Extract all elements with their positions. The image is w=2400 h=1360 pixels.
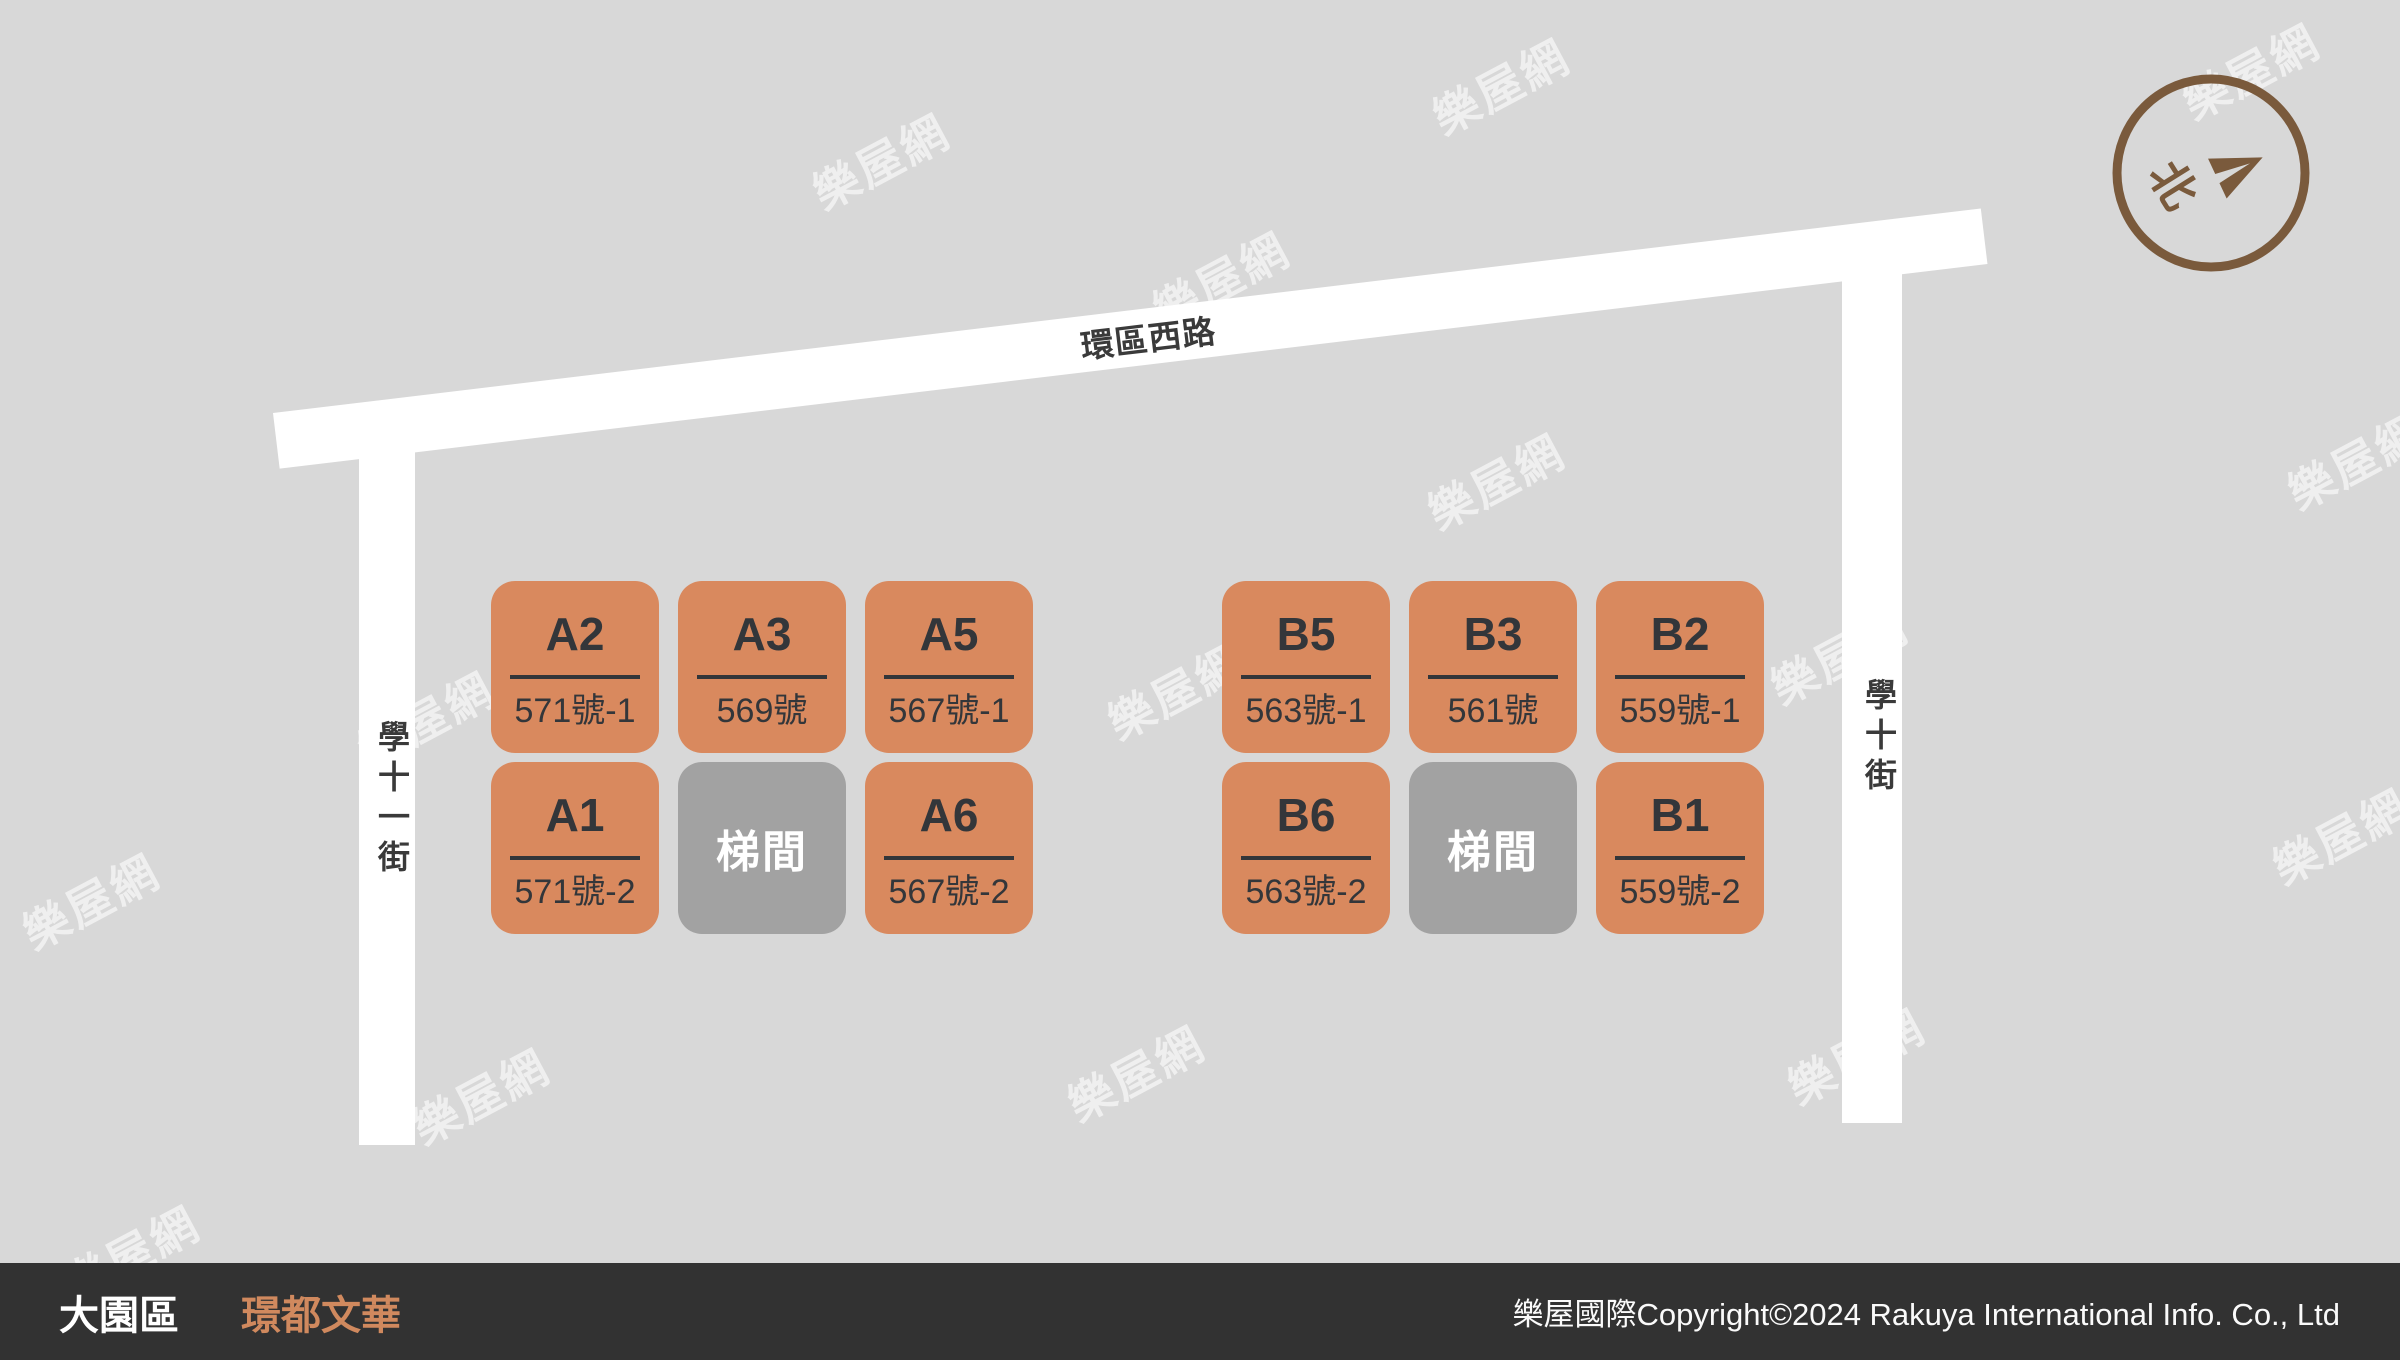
north-label: 北 [2139,152,2207,219]
unit-address: 571號-1 [515,691,636,731]
unit-label: B1 [1651,788,1710,842]
road-label-xue-10-street: 學十街 [1842,678,1902,798]
unit-divider [884,675,1014,679]
unit-divider [884,856,1014,860]
north-arrow-icon [2208,137,2272,198]
unit-box-b6[interactable]: B6563號-2 [1222,762,1390,934]
unit-address: 563號-1 [1246,691,1367,731]
unit-box-a3[interactable]: A3569號 [678,581,846,753]
unit-label: B5 [1277,607,1336,661]
watermark: 樂屋網 [10,836,171,963]
unit-box-a5[interactable]: A5567號-1 [865,581,1033,753]
unit-box-a2[interactable]: A2571號-1 [491,581,659,753]
unit-label: B2 [1651,607,1710,661]
stairwell-label: 梯間 [1447,816,1539,880]
watermark: 樂屋網 [1055,1008,1216,1135]
unit-address: 563號-2 [1246,872,1367,912]
unit-label: A5 [920,607,979,661]
stairwell-label: 梯間 [716,816,808,880]
unit-label: A3 [733,607,792,661]
district-label: 大園區 [59,1283,179,1341]
block-a: A2571號-1A3569號A5567號-1A1571號-2梯間A6567號-2 [491,581,1033,934]
unit-divider [510,675,640,679]
unit-box-b5[interactable]: B5563號-1 [1222,581,1390,753]
project-name: 璟都文華 [241,1283,401,1341]
footer-bar: 大園區 璟都文華 樂屋國際Copyright©2024 Rakuya Inter… [0,1263,2400,1360]
unit-address: 559號-1 [1620,691,1741,731]
unit-label: B6 [1277,788,1336,842]
road-label-ring-west: 環區西路 [1078,304,1219,368]
unit-divider [1241,675,1371,679]
watermark: 樂屋網 [1420,21,1581,148]
unit-box-a6[interactable]: A6567號-2 [865,762,1033,934]
unit-box-b2[interactable]: B2559號-1 [1596,581,1764,753]
unit-label: A1 [546,788,605,842]
unit-divider [1428,675,1558,679]
compass-ring [2117,79,2305,267]
unit-address: 567號-1 [889,691,1010,731]
unit-divider [1241,856,1371,860]
unit-box-b1[interactable]: B1559號-2 [1596,762,1764,934]
block-b: B5563號-1B3561號B2559號-1B6563號-2梯間B1559號-2 [1222,581,1764,934]
watermark: 樂屋網 [2275,396,2400,523]
unit-divider [1615,675,1745,679]
compass: 北 [2112,74,2310,272]
unit-label: A2 [546,607,605,661]
road-ring-west: 環區西路 [273,208,1987,468]
unit-box-b3[interactable]: B3561號 [1409,581,1577,753]
unit-address: 559號-2 [1620,872,1741,912]
unit-label: B3 [1464,607,1523,661]
unit-label: A6 [920,788,979,842]
site-plan-map: 樂屋網樂屋網樂屋網樂屋網樂屋網樂屋網樂屋網樂屋網樂屋網樂屋網樂屋網樂屋網樂屋網樂… [0,0,2400,1360]
unit-box-a1[interactable]: A1571號-2 [491,762,659,934]
watermark: 樂屋網 [800,96,961,223]
watermark: 樂屋網 [400,1031,561,1158]
unit-address: 571號-2 [515,872,636,912]
stairwell-box: 梯間 [1409,762,1577,934]
unit-divider [510,856,640,860]
unit-address: 569號 [717,691,808,731]
watermark: 樂屋網 [1415,416,1576,543]
road-label-xue-11-street: 學十一街 [359,720,415,880]
unit-divider [1615,856,1745,860]
unit-address: 567號-2 [889,872,1010,912]
unit-divider [697,675,827,679]
copyright-text: 樂屋國際Copyright©2024 Rakuya International … [1512,1289,2340,1334]
watermark: 樂屋網 [2260,771,2400,898]
stairwell-box: 梯間 [678,762,846,934]
unit-address: 561號 [1448,691,1539,731]
